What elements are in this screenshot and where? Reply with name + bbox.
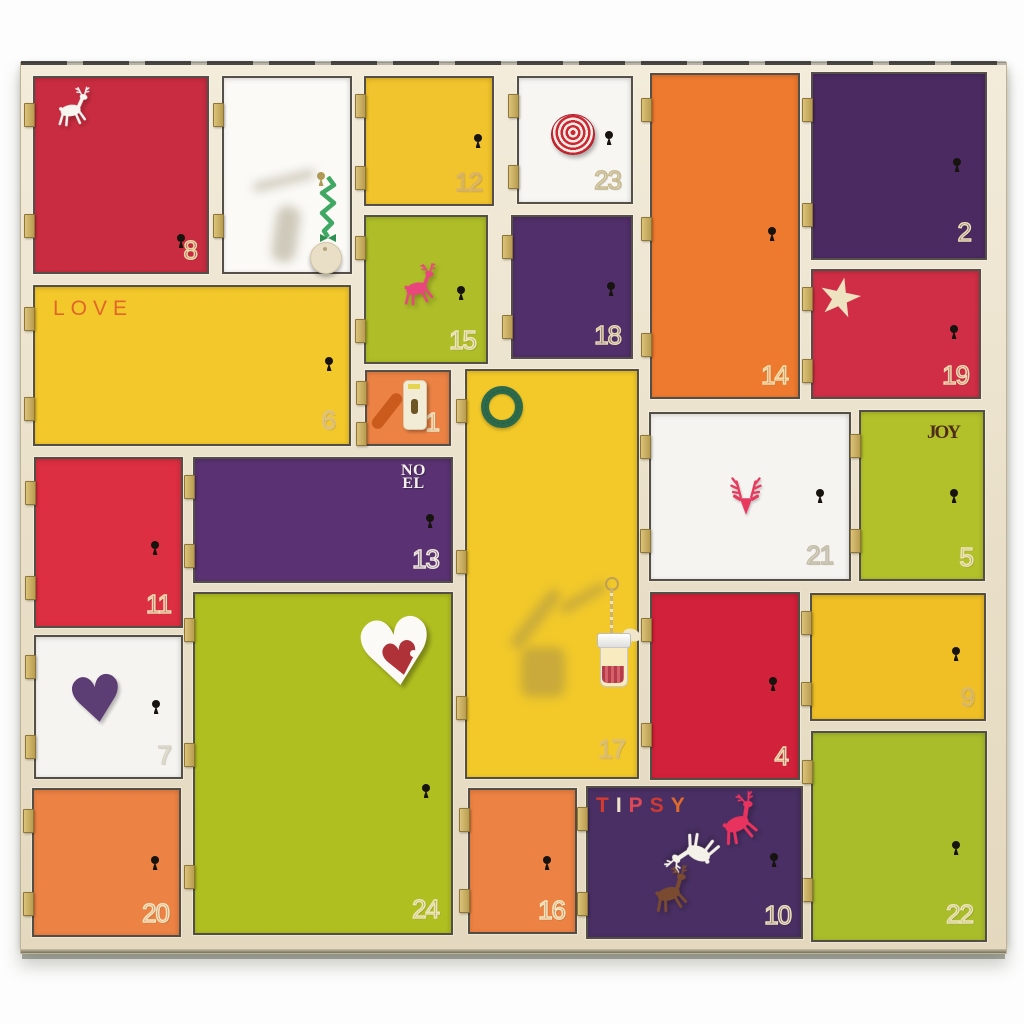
door-14[interactable]: 14 <box>652 75 798 397</box>
advent-calendar-photo: 8 122314215 18196LOVE11721 5JOY1113NO <box>0 0 1024 1024</box>
hinge-icon <box>641 217 652 241</box>
door-17[interactable]: 17 <box>467 371 637 777</box>
door-number: 11 <box>146 589 171 620</box>
hinge-icon <box>25 655 36 679</box>
hinge-icon <box>355 236 366 260</box>
jar-ornament-icon <box>597 577 649 695</box>
hinge-icon <box>850 434 861 458</box>
hinge-icon <box>25 735 36 759</box>
hinge-icon <box>802 359 813 383</box>
hinge-icon <box>24 214 35 238</box>
door-number: 22 <box>946 899 973 930</box>
keyhole-icon <box>952 841 960 849</box>
door-number: 13 <box>412 544 439 575</box>
door-word-noel: NOEL <box>401 464 426 490</box>
keyhole-icon <box>769 677 777 685</box>
hinge-icon <box>508 165 519 189</box>
spiral-rosette-icon <box>551 114 595 155</box>
hinge-icon <box>25 481 36 505</box>
door-7[interactable]: 7♥ <box>36 637 181 777</box>
door-number: 2 <box>958 217 971 248</box>
door-23[interactable]: 23 <box>519 78 631 202</box>
door-number: 12 <box>455 167 482 198</box>
door-6[interactable]: 6LOVE <box>35 287 349 444</box>
keyhole-icon <box>953 158 961 166</box>
door-number: 16 <box>538 895 565 926</box>
keyhole-icon <box>950 489 958 497</box>
keyhole-icon <box>151 541 159 549</box>
keyhole-icon <box>952 647 960 655</box>
hinge-icon <box>802 287 813 311</box>
hinge-icon <box>213 214 224 238</box>
soft-shadow <box>521 647 565 697</box>
keyhole-icon <box>152 700 160 708</box>
keyhole-icon <box>605 131 613 139</box>
door-5[interactable]: 5JOY <box>861 412 983 579</box>
keyhole-icon <box>768 227 776 235</box>
door-number: 21 <box>806 540 833 571</box>
hinge-icon <box>801 611 812 635</box>
keyhole-icon <box>950 325 958 333</box>
hinge-icon <box>456 550 467 574</box>
door-4[interactable]: 4 <box>652 594 798 778</box>
hinge-icon <box>640 435 651 459</box>
door-13[interactable]: 13NOEL <box>195 459 451 581</box>
hinge-icon <box>456 399 467 423</box>
keyhole-icon <box>325 357 333 365</box>
hinge-icon <box>502 315 513 339</box>
hinge-icon <box>508 94 519 118</box>
door-unnumbered[interactable] <box>224 78 350 272</box>
gift-tag-icon <box>377 378 437 438</box>
hinge-icon <box>850 529 861 553</box>
door-word-tipsy: TIPSY <box>596 794 692 818</box>
hinge-icon <box>801 682 812 706</box>
door-16[interactable]: 16 <box>470 790 575 932</box>
hinge-icon <box>355 166 366 190</box>
door-word-love: LOVE <box>53 297 133 321</box>
reindeer-icon <box>48 85 96 133</box>
door-11[interactable]: 11 <box>36 459 181 626</box>
hinge-icon <box>502 235 513 259</box>
hinge-icon <box>24 397 35 421</box>
door-number: 14 <box>761 360 788 391</box>
double-heart-icon: ♥♥ <box>355 608 447 700</box>
door-2[interactable]: 2 <box>813 74 985 258</box>
keyhole-icon <box>607 282 615 290</box>
soft-shadow <box>270 205 302 264</box>
hinge-icon <box>356 422 367 446</box>
door-number: 23 <box>594 165 621 196</box>
door-number: 19 <box>942 360 969 391</box>
door-15[interactable]: 15 <box>366 217 486 362</box>
hinge-icon <box>802 203 813 227</box>
reindeer-icon <box>640 862 700 922</box>
hinge-icon <box>25 576 36 600</box>
hinge-icon <box>184 865 195 889</box>
hinge-icon <box>641 98 652 122</box>
door-number: 4 <box>775 741 788 772</box>
hinge-icon <box>577 892 588 916</box>
keyhole-icon <box>816 489 824 497</box>
door-19[interactable]: 19 <box>813 271 979 397</box>
door-8[interactable]: 8 <box>35 78 207 272</box>
door-number: 24 <box>412 894 439 925</box>
hinge-icon <box>802 760 813 784</box>
hinge-icon <box>577 807 588 831</box>
reindeer-icon <box>392 261 445 314</box>
keyhole-icon <box>151 856 159 864</box>
hinge-icon <box>24 103 35 127</box>
hinge-icon <box>23 809 34 833</box>
door-1[interactable]: 1 <box>367 372 449 444</box>
door-number: 10 <box>764 900 791 931</box>
hinge-icon <box>641 723 652 747</box>
hinge-icon <box>456 696 467 720</box>
keyhole-icon <box>426 514 434 522</box>
deer-head-icon <box>721 468 771 518</box>
hinge-icon <box>641 333 652 357</box>
door-20[interactable]: 20 <box>34 790 179 935</box>
hinge-icon <box>213 103 224 127</box>
door-18[interactable]: 18 <box>513 217 631 357</box>
hinge-icon <box>184 618 195 642</box>
door-21[interactable]: 21 <box>651 414 849 579</box>
hinge-icon <box>355 94 366 118</box>
door-number: 9 <box>961 682 974 713</box>
door-number: 20 <box>142 898 169 929</box>
soft-shadow <box>252 168 316 192</box>
door-word-joy: JOY <box>927 422 959 444</box>
door-22[interactable]: 22 <box>813 733 985 940</box>
hinge-icon <box>640 529 651 553</box>
hinge-icon <box>355 319 366 343</box>
keyhole-icon <box>770 853 778 861</box>
door-12[interactable]: 12 <box>366 78 492 204</box>
hinge-icon <box>802 878 813 902</box>
door-number: 7 <box>158 740 171 771</box>
door-24[interactable]: 24♥♥ <box>195 594 451 933</box>
hinge-icon <box>23 892 34 916</box>
keyhole-icon <box>474 134 482 142</box>
star-icon <box>815 273 865 323</box>
hinge-icon <box>184 743 195 767</box>
door-9[interactable]: 9 <box>812 595 984 719</box>
hinge-icon <box>184 544 195 568</box>
door-number: 8 <box>184 235 197 266</box>
hinge-icon <box>459 808 470 832</box>
hinge-icon <box>24 307 35 331</box>
hinge-icon <box>356 381 367 405</box>
keyhole-icon <box>543 856 551 864</box>
door-10[interactable]: 10TIPSY <box>588 788 801 937</box>
door-number: 15 <box>449 325 476 356</box>
hinge-icon <box>184 475 195 499</box>
door-number: 6 <box>322 405 335 436</box>
keyhole-icon <box>422 784 430 792</box>
hinge-icon <box>459 889 470 913</box>
wreath-icon <box>481 386 523 428</box>
soft-shadow <box>508 587 563 652</box>
hinge-icon <box>802 98 813 122</box>
ribbon-tag-icon <box>308 176 344 308</box>
door-number: 5 <box>960 542 973 573</box>
heart-icon: ♥ <box>64 665 130 736</box>
door-number: 18 <box>594 320 621 351</box>
door-number: 17 <box>598 734 625 765</box>
keyhole-icon <box>457 286 465 294</box>
